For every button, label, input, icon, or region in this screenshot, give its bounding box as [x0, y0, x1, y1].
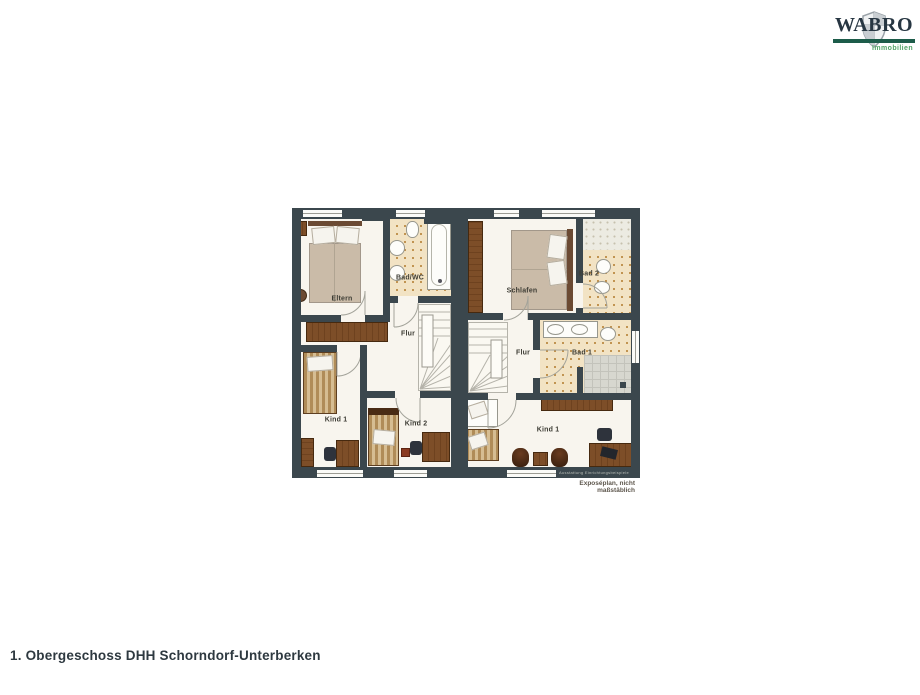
wall-pier-chimney	[424, 208, 451, 224]
wall-segment	[418, 296, 451, 303]
wabro-logo: WABRO Immobilien	[833, 10, 915, 54]
window	[507, 470, 556, 477]
room-label-kind1-right: Kind 1	[537, 427, 560, 434]
room-label-kind2: Kind 2	[405, 421, 428, 428]
logo-brand-text: WABRO	[833, 14, 915, 37]
window	[317, 470, 363, 477]
wall-segment	[468, 313, 503, 320]
wall-segment	[301, 315, 341, 322]
wall-segment	[301, 345, 337, 352]
floorplan-page: { "page": { "caption": "1. Obergeschoss …	[0, 0, 920, 695]
room-label-flur-left: Flur	[401, 331, 415, 338]
window	[494, 210, 519, 217]
window	[396, 210, 425, 217]
wall-segment	[533, 393, 631, 400]
party-wall	[451, 208, 468, 478]
window	[303, 210, 342, 217]
window	[394, 470, 427, 477]
plan-watermark: Ausstattung Einrichtungsbeispiele	[556, 468, 632, 478]
room-label-kind1-left: Kind 1	[325, 417, 348, 424]
room-label-schlafen: Schlafen	[507, 288, 538, 295]
floorplan-canvas: Eltern Bad/WC Flur Kind 1 Kind 2 Schlafe…	[0, 0, 920, 695]
wall-segment	[516, 393, 533, 400]
room-label-bad2: Bad 2	[579, 271, 599, 278]
room-label-flur-right: Flur	[516, 350, 530, 357]
wall-segment	[365, 315, 390, 322]
logo-tagline: Immobilien	[872, 45, 913, 52]
wall-segment	[383, 219, 390, 322]
room-label-bad-wc: Bad/WC	[396, 275, 424, 282]
wall-segment	[576, 308, 583, 313]
room-label-eltern: Eltern	[331, 296, 352, 303]
wall-segment	[468, 393, 488, 400]
wall-segment	[367, 391, 395, 398]
wall-segment	[420, 391, 451, 398]
logo-green-bar	[833, 39, 915, 43]
wall-segment	[528, 313, 631, 320]
plan-disclaimer: Exposéplan, nicht maßstäblich	[540, 480, 635, 494]
window	[542, 210, 595, 217]
page-title: 1. Obergeschoss DHH Schorndorf-Unterberk…	[10, 648, 321, 663]
wall-segment	[390, 296, 398, 303]
wall-segment	[533, 320, 540, 350]
wall-segment	[360, 345, 367, 467]
room-label-bad1: Bad 1	[572, 350, 592, 357]
wall-segment	[533, 378, 540, 393]
wall-segment	[577, 367, 583, 393]
window	[632, 331, 639, 363]
wall-left	[292, 208, 301, 478]
